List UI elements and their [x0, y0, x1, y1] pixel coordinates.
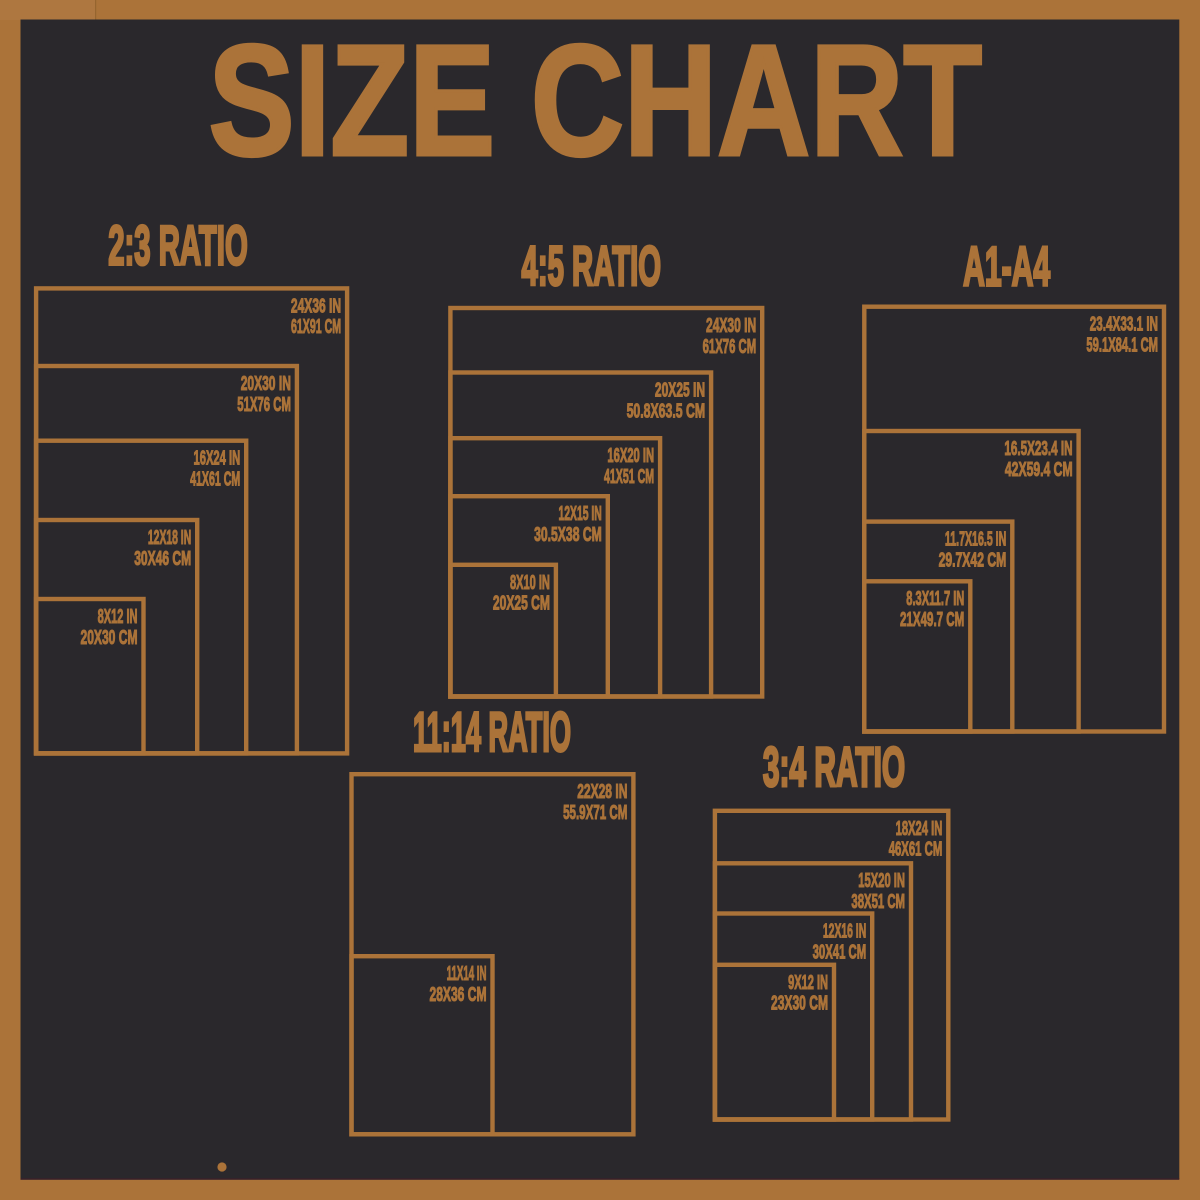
svg-text:12X15 IN: 12X15 IN	[559, 502, 602, 525]
svg-text:61X76 CM: 61X76 CM	[703, 335, 757, 358]
svg-text:11.7X16.5 IN: 11.7X16.5 IN	[945, 528, 1006, 551]
svg-text:42X59.4 CM: 42X59.4 CM	[1005, 458, 1073, 481]
svg-text:29.7X42 CM: 29.7X42 CM	[939, 549, 1007, 572]
svg-text:55.9X71 CM: 55.9X71 CM	[563, 801, 627, 824]
svg-text:20X30 CM: 20X30 CM	[81, 626, 138, 649]
svg-text:8X10 IN: 8X10 IN	[510, 571, 550, 594]
svg-text:24X36 IN: 24X36 IN	[291, 294, 341, 317]
svg-text:15X20 IN: 15X20 IN	[858, 869, 905, 892]
svg-text:9X12 IN: 9X12 IN	[788, 971, 828, 994]
svg-text:16X24 IN: 16X24 IN	[194, 447, 241, 470]
svg-text:8.3X11.7 IN: 8.3X11.7 IN	[906, 587, 964, 610]
svg-text:20X25 CM: 20X25 CM	[493, 592, 550, 615]
svg-text:11:14 RATIO: 11:14 RATIO	[413, 700, 571, 763]
svg-text:50.8X63.5 CM: 50.8X63.5 CM	[627, 399, 706, 422]
svg-text:30X41 CM: 30X41 CM	[813, 940, 867, 963]
svg-text:30.5X38 CM: 30.5X38 CM	[534, 523, 602, 546]
svg-text:SIZE CHART: SIZE CHART	[209, 13, 983, 189]
svg-text:12X16 IN: 12X16 IN	[823, 920, 866, 943]
svg-text:59.1X84.1 CM: 59.1X84.1 CM	[1086, 334, 1158, 357]
svg-text:16.5X23.4 IN: 16.5X23.4 IN	[1004, 437, 1072, 460]
svg-text:16X20 IN: 16X20 IN	[607, 444, 654, 467]
svg-text:41X51 CM: 41X51 CM	[604, 465, 654, 488]
svg-text:21X49.7 CM: 21X49.7 CM	[900, 608, 964, 631]
svg-text:8X12 IN: 8X12 IN	[98, 605, 138, 628]
svg-text:38X51 CM: 38X51 CM	[851, 890, 905, 913]
svg-text:3:4 RATIO: 3:4 RATIO	[763, 735, 905, 798]
svg-text:23X30 CM: 23X30 CM	[771, 992, 828, 1015]
svg-text:61X91 CM: 61X91 CM	[291, 315, 341, 338]
svg-text:20X30 IN: 20X30 IN	[241, 372, 291, 395]
svg-text:2:3 RATIO: 2:3 RATIO	[108, 213, 247, 276]
svg-text:46X61 CM: 46X61 CM	[889, 838, 943, 861]
svg-text:22X28 IN: 22X28 IN	[577, 780, 627, 803]
svg-text:24X30 IN: 24X30 IN	[706, 314, 756, 337]
svg-text:41X61 CM: 41X61 CM	[190, 468, 240, 491]
svg-text:11X14 IN: 11X14 IN	[447, 962, 487, 985]
svg-text:20X25 IN: 20X25 IN	[655, 378, 705, 401]
svg-text:18X24 IN: 18X24 IN	[896, 817, 943, 840]
svg-text:23.4X33.1 IN: 23.4X33.1 IN	[1090, 313, 1158, 336]
svg-text:28X36 CM: 28X36 CM	[430, 983, 487, 1006]
svg-text:30X46 CM: 30X46 CM	[134, 547, 191, 570]
svg-text:4:5 RATIO: 4:5 RATIO	[522, 234, 662, 297]
svg-text:12X18 IN: 12X18 IN	[148, 526, 191, 549]
svg-text:A1-A4: A1-A4	[963, 235, 1050, 298]
svg-text:51X76 CM: 51X76 CM	[237, 393, 291, 416]
